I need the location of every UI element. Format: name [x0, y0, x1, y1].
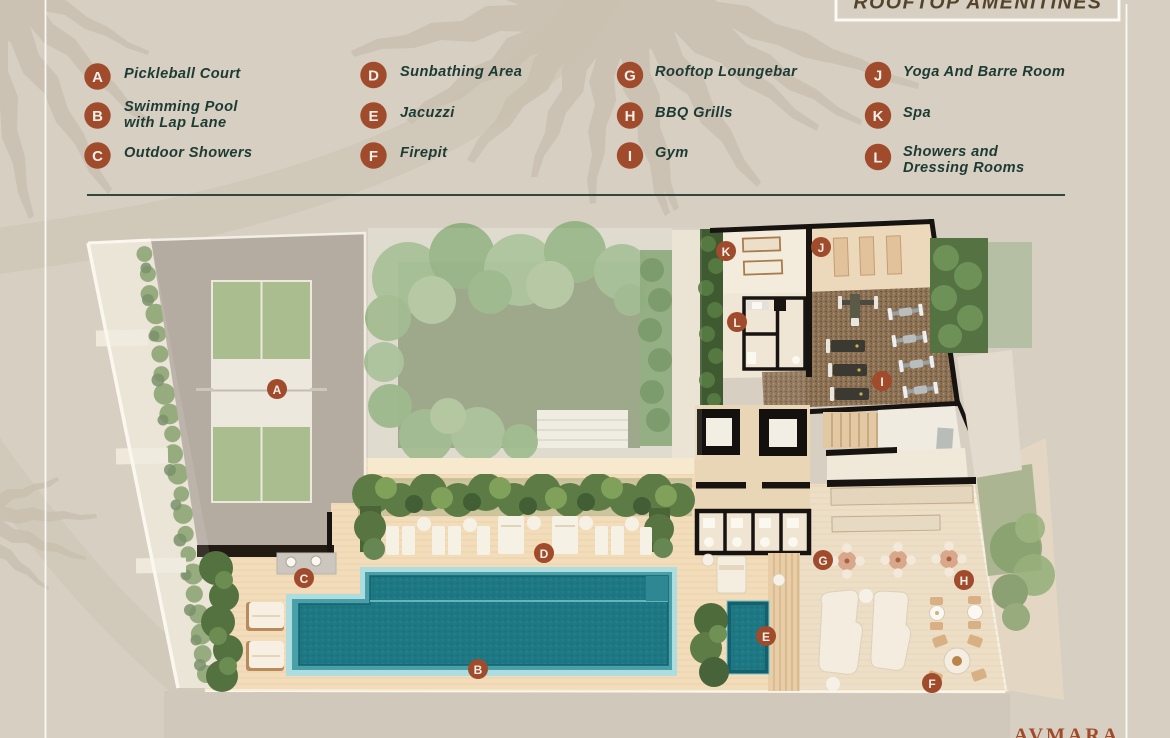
svg-text:A: A	[273, 383, 282, 397]
svg-text:Dressing Rooms: Dressing Rooms	[903, 160, 1025, 176]
svg-text:A: A	[92, 69, 103, 86]
svg-text:K: K	[722, 245, 731, 259]
svg-text:J: J	[818, 241, 825, 255]
svg-text:Rooftop Loungebar: Rooftop Loungebar	[655, 64, 798, 80]
svg-text:Outdoor Showers: Outdoor Showers	[124, 145, 252, 161]
svg-text:D: D	[368, 68, 379, 85]
svg-text:E: E	[368, 108, 378, 125]
svg-text:ROOFTOP AMENITINES: ROOFTOP AMENITINES	[853, 0, 1102, 14]
svg-text:L: L	[733, 316, 740, 330]
svg-text:C: C	[300, 572, 309, 586]
svg-text:Jacuzzi: Jacuzzi	[400, 105, 455, 121]
svg-text:H: H	[960, 574, 969, 588]
svg-text:AVMARA: AVMARA	[1014, 725, 1121, 738]
svg-text:BBQ Grills: BBQ Grills	[655, 105, 733, 121]
svg-text:G: G	[818, 554, 827, 568]
svg-text:D: D	[540, 547, 549, 561]
svg-text:G: G	[624, 68, 636, 85]
svg-text:F: F	[928, 677, 935, 691]
svg-text:Spa: Spa	[903, 105, 931, 121]
svg-text:I: I	[880, 375, 883, 389]
svg-text:B: B	[474, 663, 483, 677]
svg-text:E: E	[762, 630, 770, 644]
svg-text:F: F	[369, 148, 378, 165]
svg-text:I: I	[628, 148, 632, 165]
svg-text:Pickleball Court: Pickleball Court	[124, 66, 241, 82]
svg-text:L: L	[873, 150, 882, 167]
svg-text:Firepit: Firepit	[400, 145, 448, 161]
svg-text:K: K	[873, 108, 884, 125]
svg-text:B: B	[92, 108, 103, 125]
svg-text:Showers and: Showers and	[903, 144, 999, 160]
svg-text:Swimming Pool: Swimming Pool	[124, 99, 238, 115]
svg-text:Sunbathing Area: Sunbathing Area	[400, 64, 522, 80]
svg-text:Gym: Gym	[655, 145, 689, 161]
svg-text:Yoga And Barre Room: Yoga And Barre Room	[903, 64, 1065, 80]
svg-text:C: C	[92, 148, 103, 165]
svg-text:H: H	[625, 108, 636, 125]
svg-text:with Lap Lane: with Lap Lane	[124, 115, 227, 131]
svg-text:J: J	[874, 68, 882, 85]
